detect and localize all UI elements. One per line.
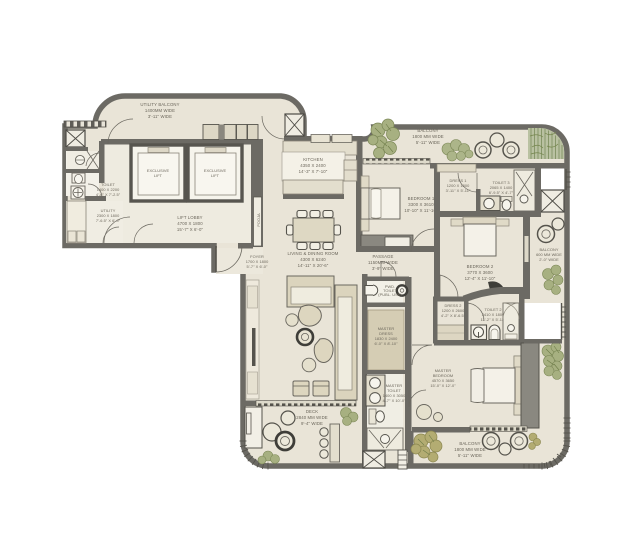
svg-text:5'-11" WIDE: 5'-11" WIDE — [416, 140, 440, 145]
svg-text:15'-0" X 12'-0": 15'-0" X 12'-0" — [430, 383, 456, 388]
svg-text:LIFT LOBBY: LIFT LOBBY — [177, 215, 202, 220]
svg-text:12'-4" X 11'-10": 12'-4" X 11'-10" — [465, 276, 496, 281]
svg-text:6'-9.5" X 4'-7": 6'-9.5" X 4'-7" — [489, 190, 514, 195]
svg-text:2840 MM WIDE: 2840 MM WIDE — [296, 415, 328, 420]
svg-text:4300 X 6240: 4300 X 6240 — [300, 257, 326, 262]
svg-text:1800 MM WIDE: 1800 MM WIDE — [454, 447, 486, 452]
svg-text:2'-0" WIDE: 2'-0" WIDE — [539, 257, 559, 262]
svg-text:LIVING & DINING ROOM: LIVING & DINING ROOM — [288, 251, 339, 256]
svg-text:LIFT: LIFT — [211, 173, 220, 178]
svg-text:PASSAGE: PASSAGE — [373, 254, 394, 259]
svg-text:10'-10" X 11'-10": 10'-10" X 11'-10" — [404, 208, 438, 213]
svg-text:LIFT: LIFT — [154, 173, 163, 178]
svg-text:1400MM WIDE: 1400MM WIDE — [145, 108, 175, 113]
svg-text:5'-11" WIDE: 5'-11" WIDE — [458, 453, 482, 458]
svg-text:POOJA: POOJA — [256, 213, 261, 227]
svg-text:1150MM WIDE: 1150MM WIDE — [368, 260, 398, 265]
svg-text:15'-7" X 6'-0": 15'-7" X 6'-0" — [177, 227, 204, 232]
svg-text:3'-11" WIDE: 3'-11" WIDE — [148, 114, 172, 119]
svg-text:11'-2" X 5'-11": 11'-2" X 5'-11" — [481, 317, 506, 322]
svg-text:BALCONY: BALCONY — [417, 128, 438, 133]
svg-text:4'-7" X 10'-0": 4'-7" X 10'-0" — [382, 398, 406, 403]
svg-text:DECK: DECK — [306, 409, 318, 414]
svg-text:4350 X 2400: 4350 X 2400 — [300, 163, 326, 168]
svg-text:KITCHEN: KITCHEN — [303, 157, 323, 162]
svg-text:14'-3" X 7'-10": 14'-3" X 7'-10" — [299, 169, 328, 174]
svg-text:3300 X 3610: 3300 X 3610 — [408, 202, 434, 207]
svg-text:(PUBL. USE): (PUBL. USE) — [378, 292, 402, 297]
svg-text:3'-11" X 5'-11": 3'-11" X 5'-11" — [446, 188, 471, 193]
svg-text:6'-0" X 8'-10": 6'-0" X 8'-10" — [374, 341, 398, 346]
svg-text:3'-9" WIDE: 3'-9" WIDE — [372, 266, 394, 271]
svg-text:4700 X 1800: 4700 X 1800 — [177, 221, 203, 226]
svg-text:BEDROOM 2: BEDROOM 2 — [467, 264, 494, 269]
svg-text:4'-6" X 7'-2.5": 4'-6" X 7'-2.5" — [96, 192, 121, 197]
svg-text:1800 MM WIDE: 1800 MM WIDE — [412, 134, 444, 139]
svg-text:9'-4" WIDE: 9'-4" WIDE — [301, 421, 323, 426]
svg-text:4'-2" X 8'-6.5": 4'-2" X 8'-6.5" — [441, 313, 466, 318]
svg-text:5'-7" X 6'-0": 5'-7" X 6'-0" — [247, 264, 268, 269]
svg-text:3770 X 3600: 3770 X 3600 — [467, 270, 493, 275]
svg-text:14'-11" X 20'-6": 14'-11" X 20'-6" — [298, 263, 329, 268]
svg-text:BEDROOM 1: BEDROOM 1 — [408, 196, 435, 201]
svg-text:BALCONY: BALCONY — [459, 441, 480, 446]
svg-text:UTILITY BALCONY: UTILITY BALCONY — [140, 102, 179, 107]
